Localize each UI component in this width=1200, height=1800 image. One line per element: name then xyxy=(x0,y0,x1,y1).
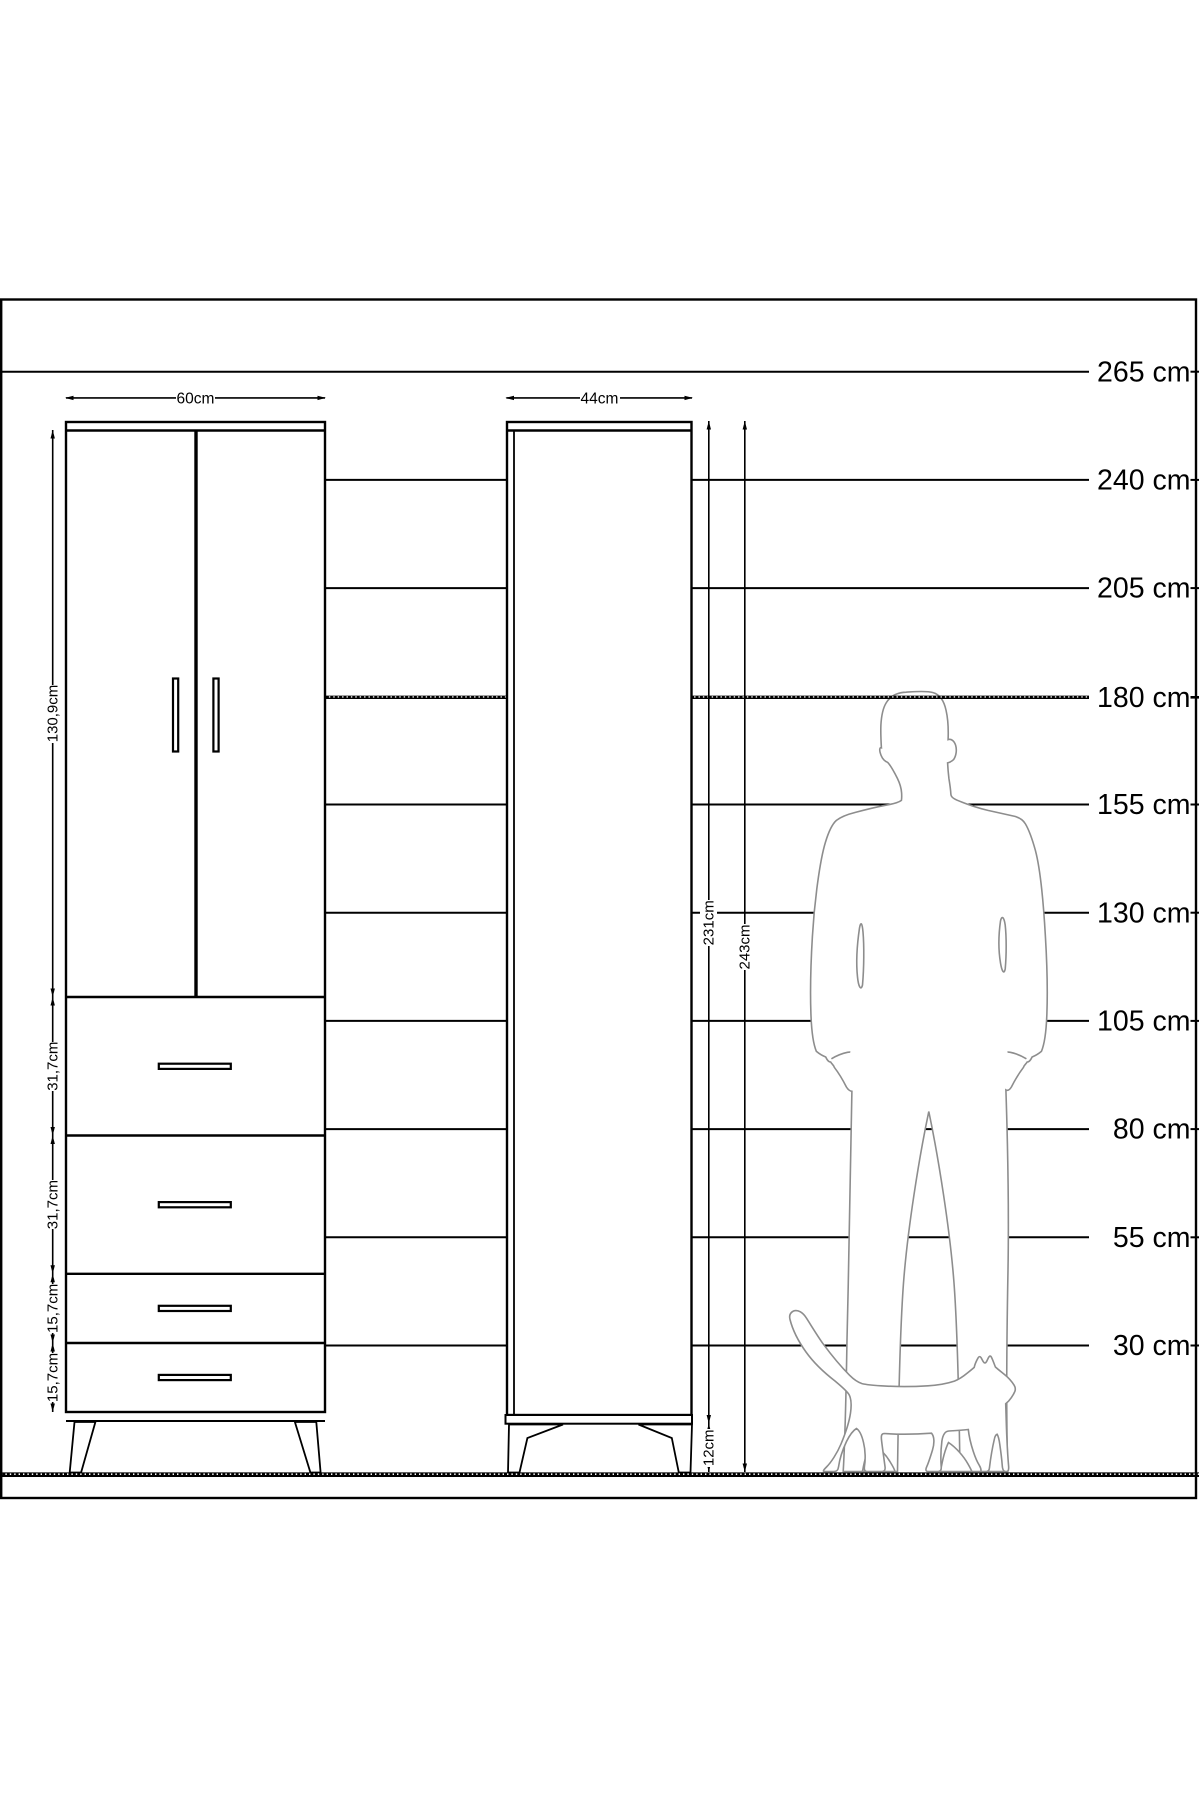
svg-text:105 cm: 105 cm xyxy=(1097,1006,1190,1038)
svg-text:31,7cm: 31,7cm xyxy=(45,1180,62,1229)
svg-text:30 cm: 30 cm xyxy=(1113,1330,1191,1362)
svg-text:240 cm: 240 cm xyxy=(1097,465,1190,497)
svg-text:12cm: 12cm xyxy=(701,1429,718,1466)
svg-text:243cm: 243cm xyxy=(737,924,754,969)
svg-text:130,9cm: 130,9cm xyxy=(45,685,62,743)
svg-text:60cm: 60cm xyxy=(177,390,215,407)
svg-text:130 cm: 130 cm xyxy=(1097,897,1190,929)
svg-text:265 cm: 265 cm xyxy=(1097,356,1190,388)
svg-text:15,7cm: 15,7cm xyxy=(45,1284,62,1333)
svg-text:231cm: 231cm xyxy=(701,900,718,945)
svg-text:44cm: 44cm xyxy=(581,390,619,407)
svg-text:205 cm: 205 cm xyxy=(1097,573,1190,605)
svg-text:15,7cm: 15,7cm xyxy=(45,1353,62,1402)
svg-text:155 cm: 155 cm xyxy=(1097,789,1190,821)
svg-text:80 cm: 80 cm xyxy=(1113,1114,1191,1146)
svg-text:180 cm: 180 cm xyxy=(1097,682,1190,714)
svg-text:31,7cm: 31,7cm xyxy=(45,1042,62,1091)
svg-text:55 cm: 55 cm xyxy=(1113,1222,1191,1254)
